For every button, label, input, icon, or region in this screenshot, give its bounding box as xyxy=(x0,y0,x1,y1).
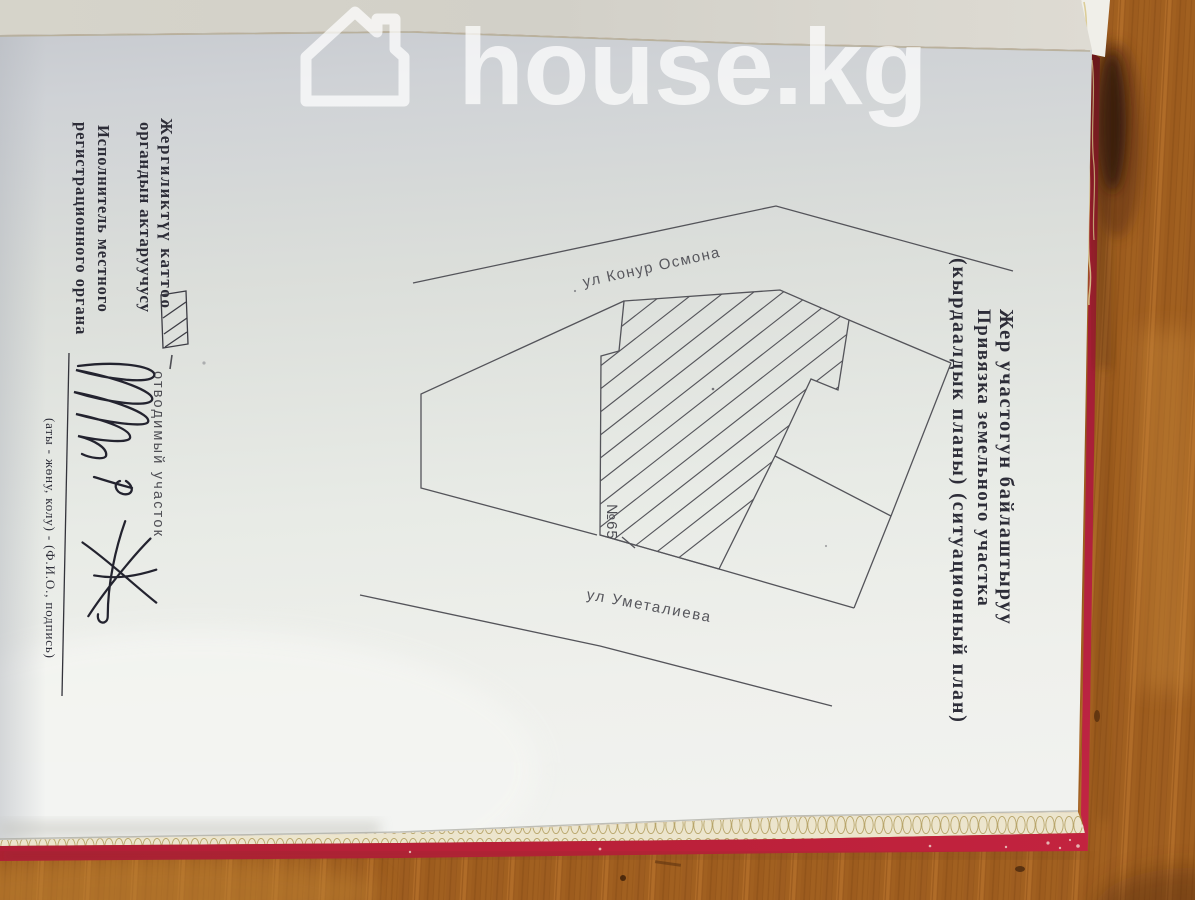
svg-text:(аты - жөну, колу) - (Ф.И.О.,: (аты - жөну, колу) - (Ф.И.О., подпись) xyxy=(43,418,58,659)
svg-text:Исполнитель местного: Исполнитель местного xyxy=(94,125,113,313)
svg-text:регистрационного органа: регистрационного органа xyxy=(72,122,91,335)
svg-text:house.kg: house.kg xyxy=(458,6,927,127)
svg-text:№65: №65 xyxy=(603,504,620,540)
svg-text:Привязка земельного участка: Привязка земельного участка xyxy=(973,309,994,607)
svg-text:органдын актаруучусу: органдын актаруучусу xyxy=(136,122,155,313)
svg-text:Жергиликтүү каттоо: Жергиликтүү каттоо xyxy=(157,118,176,310)
svg-text:Жер участогун байлаштыруу: Жер участогун байлаштыруу xyxy=(995,309,1017,626)
svg-text:(кырдаалдык планы) (ситуационн: (кырдаалдык планы) (ситуационный план) xyxy=(948,258,970,724)
